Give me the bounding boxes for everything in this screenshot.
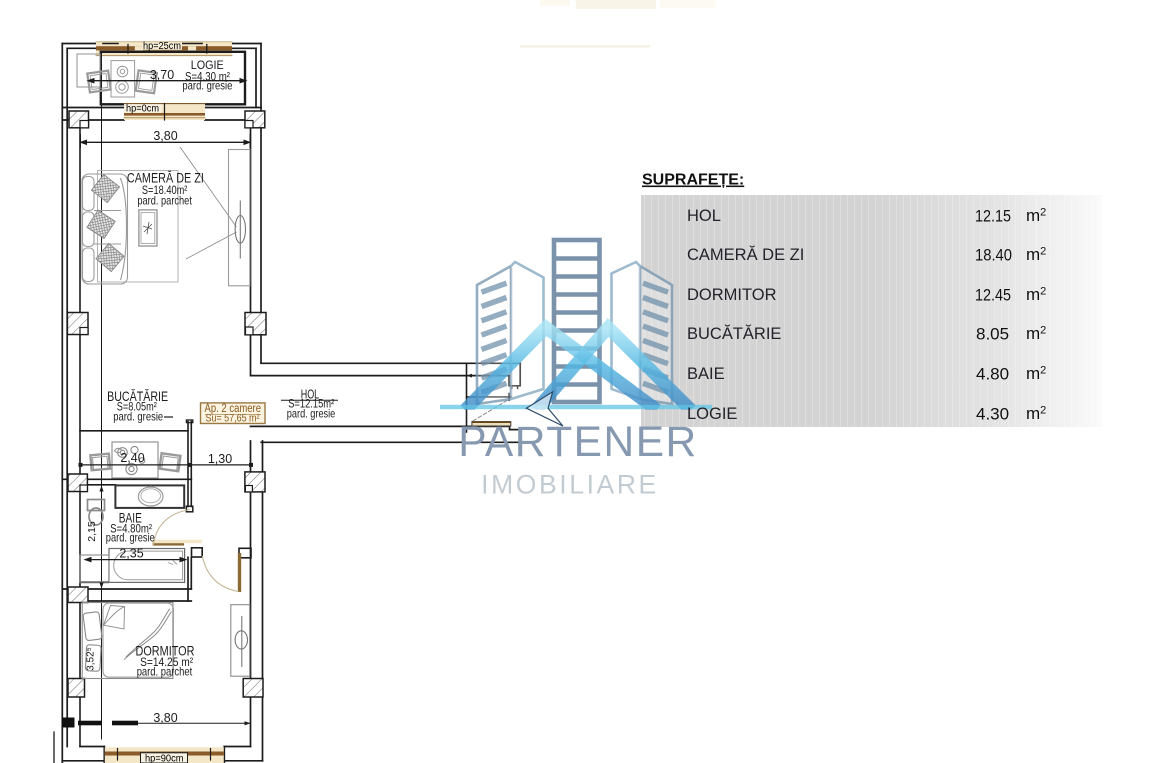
svg-text:LOGIE: LOGIE (687, 405, 737, 423)
svg-text:IMOBILIARE: IMOBILIARE (481, 470, 659, 500)
svg-text:DORMITOR: DORMITOR (687, 286, 777, 304)
svg-text:12.45: 12.45 (975, 286, 1011, 305)
svg-text:2,15: 2,15 (86, 521, 98, 542)
svg-text:pard. parchet: pard. parchet (137, 194, 192, 208)
svg-text:SUPRAFEȚE:: SUPRAFEȚE: (642, 172, 744, 189)
svg-text:hp=25cm: hp=25cm (143, 41, 181, 52)
svg-text:PARTENER: PARTENER (458, 419, 698, 466)
svg-text:3,70: 3,70 (150, 68, 174, 82)
svg-text:CAMERĂ DE ZI: CAMERĂ DE ZI (687, 245, 804, 264)
svg-text:8.05: 8.05 (976, 325, 1009, 344)
svg-text:pard. parchet: pard. parchet (137, 664, 193, 678)
svg-text:3,80: 3,80 (153, 129, 177, 143)
svg-text:hp=90cm: hp=90cm (145, 753, 184, 763)
svg-text:pard. gresie: pard. gresie (113, 410, 163, 424)
svg-text:4.30: 4.30 (976, 405, 1009, 424)
svg-text:BAIE: BAIE (687, 365, 725, 383)
svg-text:2,40: 2,40 (120, 451, 144, 465)
svg-text:pard. gresie: pard. gresie (182, 79, 232, 93)
svg-text:3,80: 3,80 (153, 711, 177, 725)
svg-text:12.15: 12.15 (975, 207, 1011, 226)
svg-text:3,52⁵: 3,52⁵ (86, 647, 97, 671)
svg-text:pard. gresie: pard. gresie (287, 406, 336, 420)
svg-text:1,30: 1,30 (208, 452, 232, 466)
svg-text:HOL: HOL (687, 207, 721, 225)
svg-text:2,35: 2,35 (119, 547, 143, 561)
svg-text:BUCĂTĂRIE: BUCĂTĂRIE (687, 324, 781, 343)
svg-text:18.40: 18.40 (975, 246, 1012, 265)
svg-text:pard. gresie: pard. gresie (106, 531, 155, 545)
svg-text:4.80: 4.80 (976, 365, 1009, 384)
svg-text:hp=0cm: hp=0cm (126, 104, 159, 115)
